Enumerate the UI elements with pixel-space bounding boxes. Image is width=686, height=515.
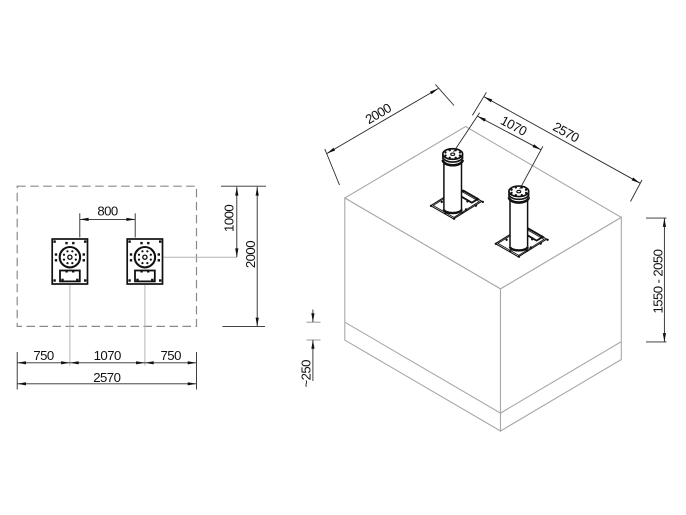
svg-text:1000: 1000 <box>222 205 237 232</box>
svg-text:2000: 2000 <box>363 100 394 127</box>
svg-text:2000: 2000 <box>243 241 258 268</box>
svg-text:1550 - 2050: 1550 - 2050 <box>651 249 666 313</box>
svg-text:1070: 1070 <box>94 348 121 363</box>
svg-text:2570: 2570 <box>93 370 120 385</box>
svg-text:~250: ~250 <box>298 360 313 388</box>
svg-text:800: 800 <box>97 204 118 219</box>
svg-text:2570: 2570 <box>550 119 581 145</box>
svg-text:750: 750 <box>33 348 54 363</box>
svg-text:750: 750 <box>161 348 182 363</box>
